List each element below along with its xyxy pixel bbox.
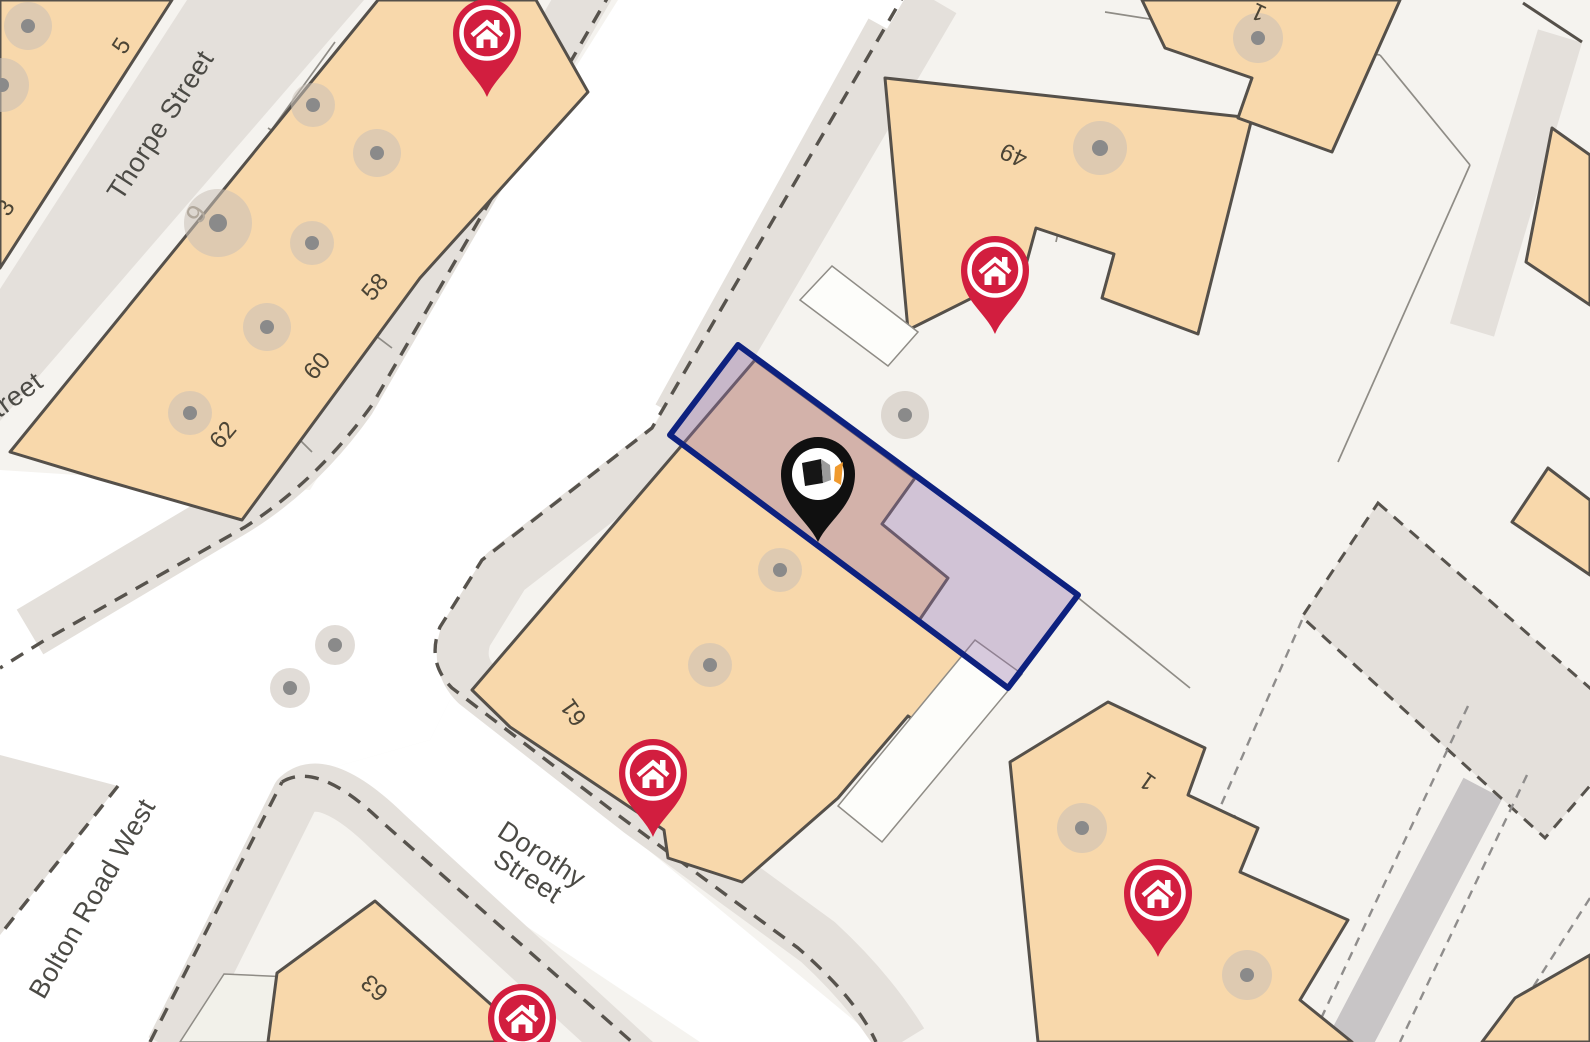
tree-icon <box>4 2 52 50</box>
map-viewport[interactable]: Thorpe Street treet Bolton Road West Dor… <box>0 0 1590 1042</box>
tree-icon <box>1073 121 1127 175</box>
tree-icon <box>881 391 929 439</box>
logo-cube-front <box>802 459 823 486</box>
tree-icon <box>291 83 335 127</box>
tree-icon <box>758 548 802 592</box>
tree-icon <box>270 668 310 708</box>
tree-icon <box>243 303 291 351</box>
tree-icon <box>353 129 401 177</box>
tree-icon <box>1057 803 1107 853</box>
tree-icon <box>184 189 252 257</box>
map-canvas[interactable]: Thorpe Street treet Bolton Road West Dor… <box>0 0 1590 1042</box>
tree-icon <box>168 391 212 435</box>
tree-icon <box>290 221 334 265</box>
tree-icon <box>688 643 732 687</box>
tree-icon <box>1222 950 1272 1000</box>
tree-icon <box>315 625 355 665</box>
